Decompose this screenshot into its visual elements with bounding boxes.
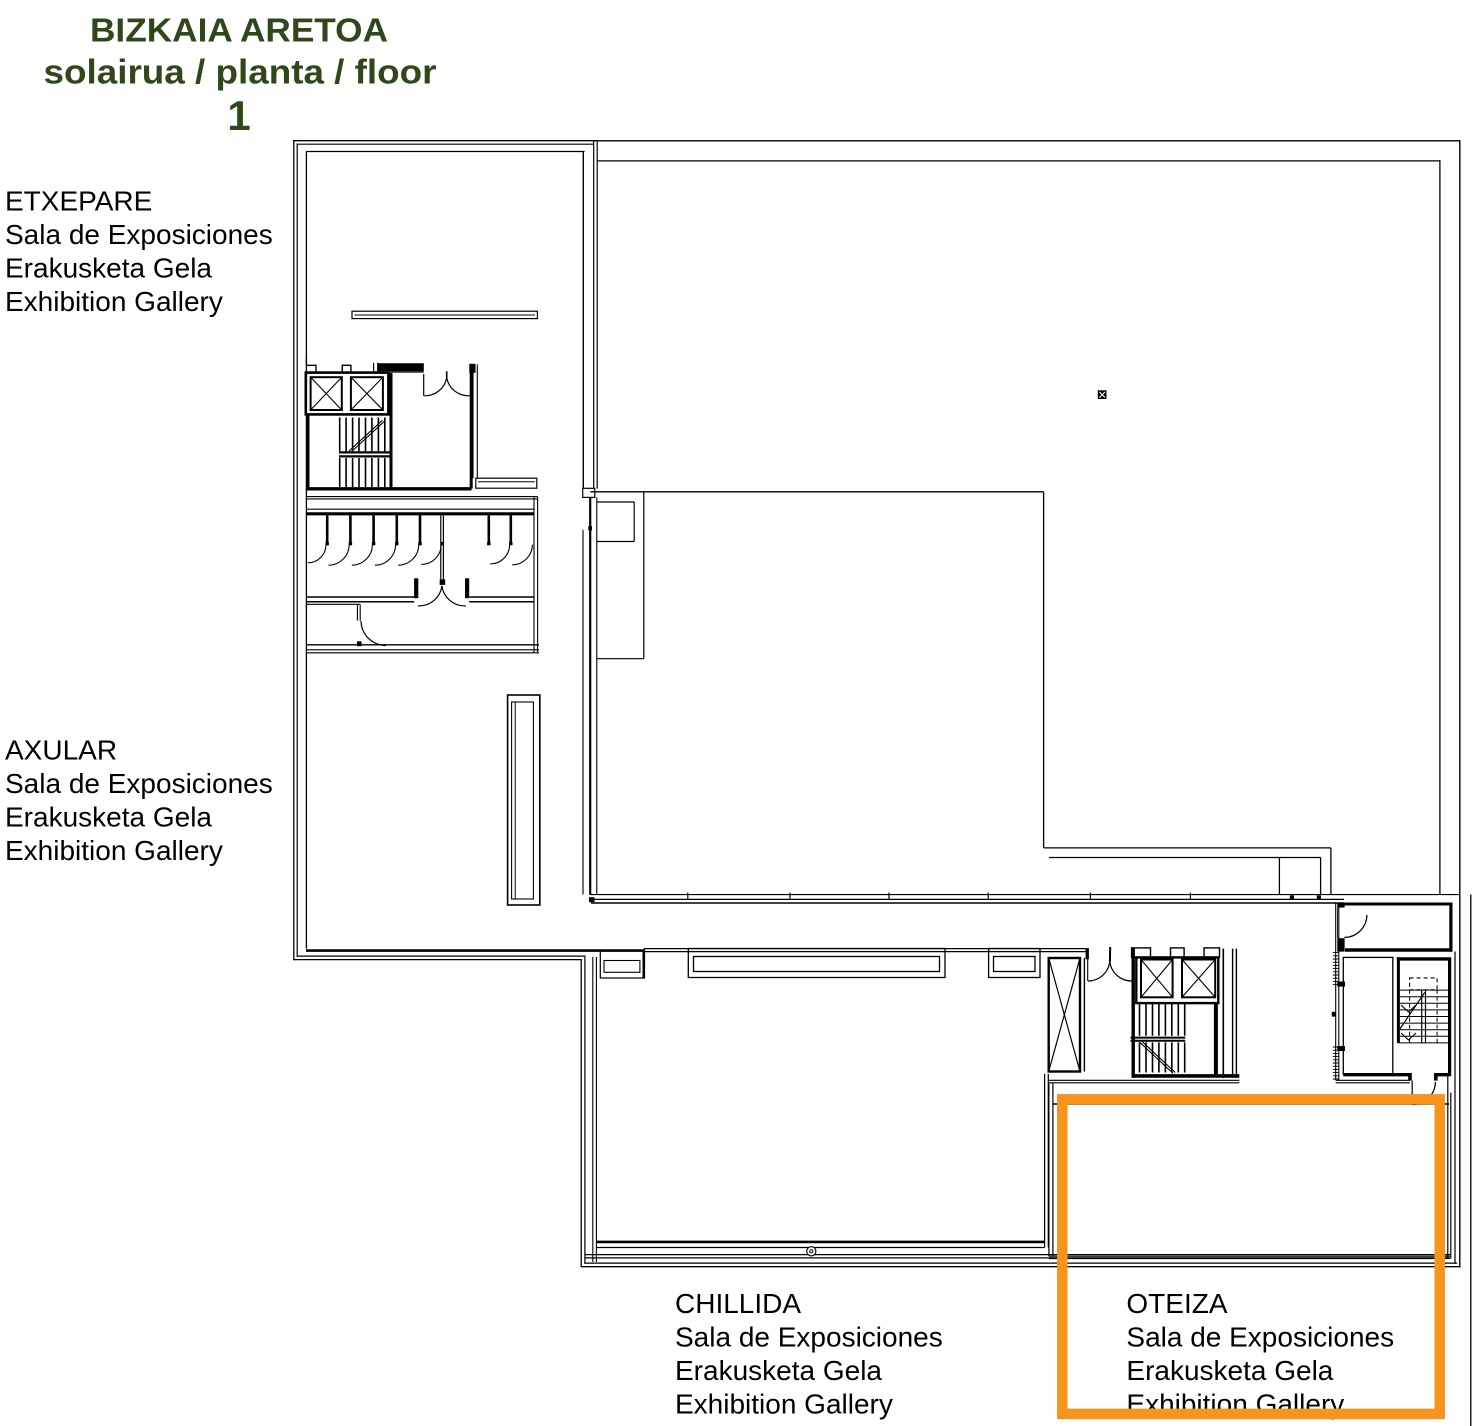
svg-text:solairua / planta / floor: solairua / planta / floor [44, 54, 437, 92]
svg-text:BIZKAIA ARETOA: BIZKAIA ARETOA [90, 12, 388, 49]
svg-text:CHILLIDASala de ExposicionesEr: CHILLIDASala de ExposicionesErakusketa G… [675, 1288, 943, 1420]
svg-text:OTEIZASala de ExposicionesErak: OTEIZASala de ExposicionesErakusketa Gel… [1126, 1288, 1394, 1420]
svg-text:AXULARSala de ExposicionesErak: AXULARSala de ExposicionesErakusketa Gel… [5, 735, 273, 867]
svg-text:1: 1 [227, 92, 250, 139]
svg-text:ETXEPARESala de ExposicionesEr: ETXEPARESala de ExposicionesErakusketa G… [5, 186, 273, 318]
